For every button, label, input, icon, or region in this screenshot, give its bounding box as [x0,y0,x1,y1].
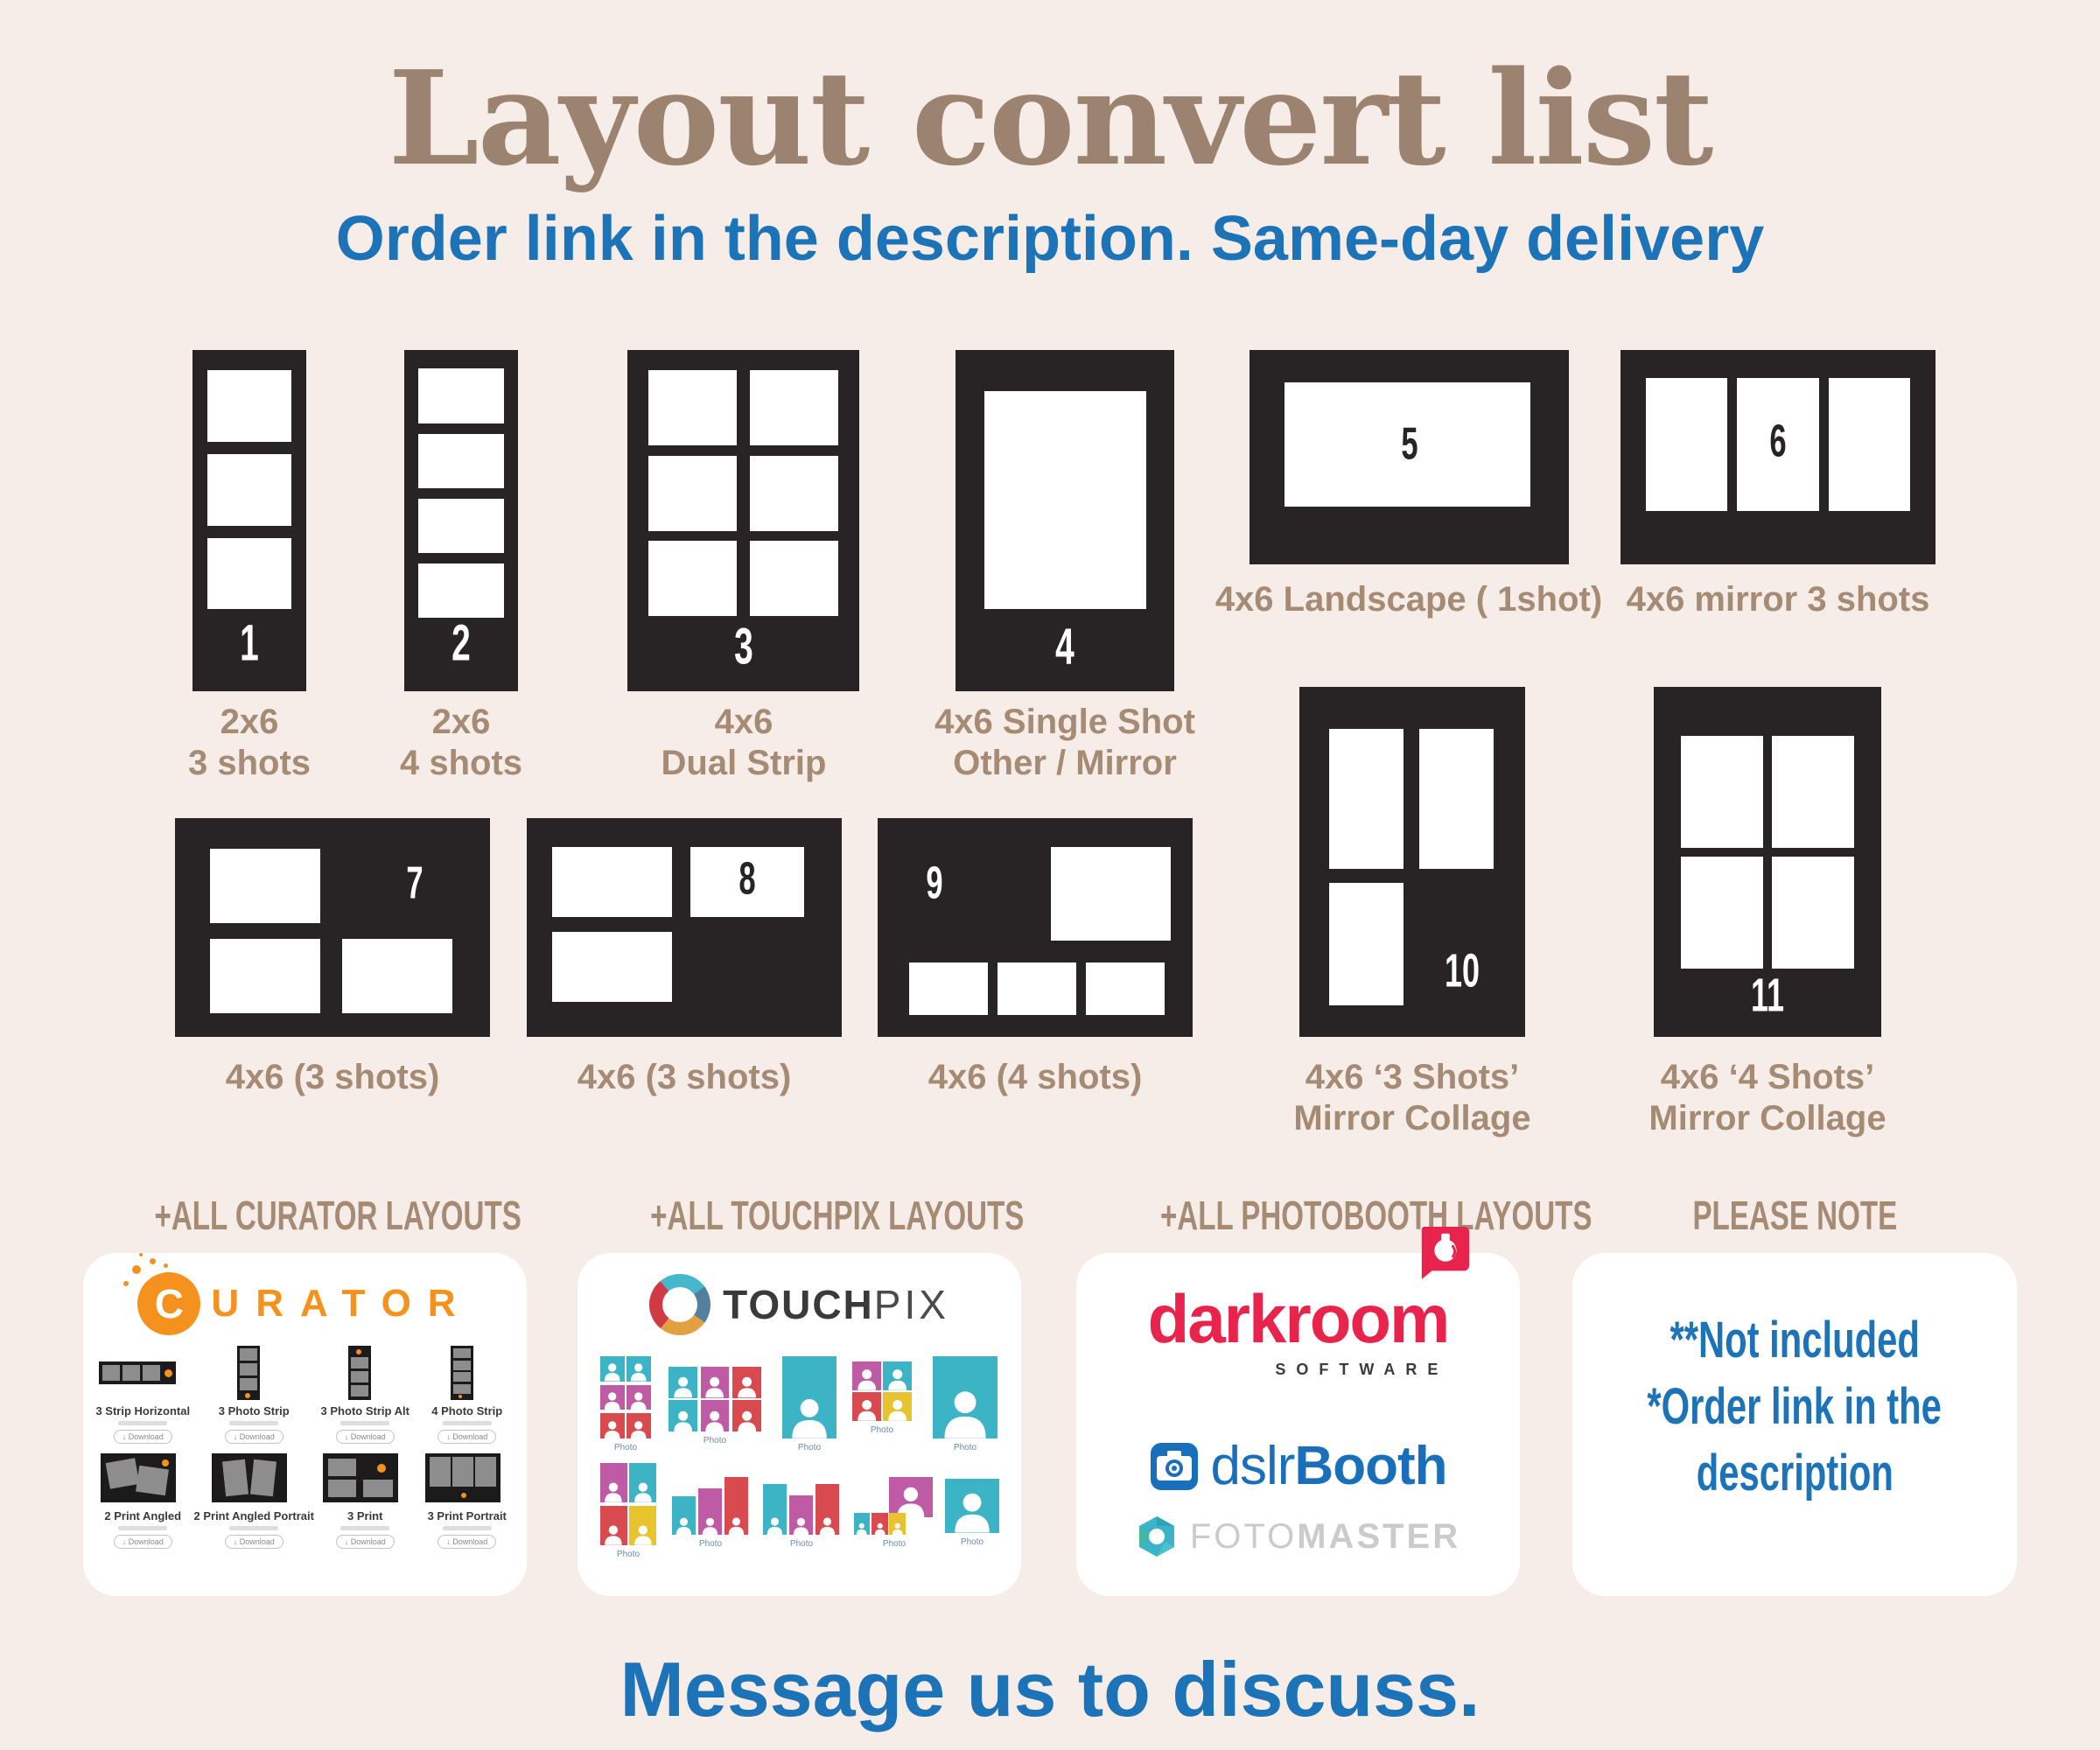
photo-slot [207,454,291,526]
download-button: ↓ Download [225,1535,283,1549]
photo-slot [1772,736,1854,848]
download-button: ↓ Download [114,1535,172,1549]
photo-slot [1329,729,1403,869]
download-button: ↓ Download [114,1430,172,1444]
curator-layout-caption: 3 Print [347,1509,382,1522]
photo-slot [1419,729,1494,869]
photo-slot [1772,857,1854,969]
touchpix-layout-thumb [945,1479,999,1533]
curator-card: C URATOR 3 Strip Horizontal↓ Download3 P… [83,1253,527,1596]
photo-slot [552,847,672,917]
photo-slot [342,939,452,1013]
photo-slot [418,499,505,553]
tile-label: 4x6 Single Shot Other / Mirror [864,702,1266,784]
curator-wordmark: URATOR [211,1282,472,1326]
tile-number: 10 [1445,943,1480,998]
touchpix-thumb-caption: Photo [663,1539,758,1549]
download-button: ↓ Download [336,1430,395,1444]
touchpix-header: +ALL TOUCHPIX LAYOUTS [577,1192,1021,1239]
photo-slot [648,370,737,445]
curator-layout-dims [229,1421,278,1425]
curator-layout-thumb [423,1346,511,1400]
dslrbooth-logo: dslrBooth [1076,1435,1520,1497]
layout-tile-7: 7 [175,818,490,1037]
curator-layout-thumb [210,1346,297,1400]
tile-number: 8 [738,853,755,905]
photo-slot [1329,883,1403,1005]
tile-number: 1 [240,614,259,673]
tile-number: 11 [1751,968,1784,1023]
darkroom-logo: darkroom SOFTWARE [1076,1279,1520,1379]
download-button: ↓ Download [336,1535,395,1549]
curator-layout-item: 4 Photo Strip↓ Download [416,1346,518,1444]
curator-layout-item: 2 Print Angled↓ Download [92,1451,194,1549]
tile-number: 2 [451,614,471,673]
curator-layout-caption: 2 Print Angled [104,1509,181,1522]
curator-layout-dims [229,1526,278,1530]
tile-label: 4x6 mirror 3 shots [1577,579,1979,620]
tile-label: 4x6 (3 shots) [483,1057,885,1098]
photo-slot [648,541,737,616]
curator-layout-item: 3 Print Portrait↓ Download [416,1451,518,1549]
fotomaster-aperture-icon [1136,1515,1178,1557]
note-text: **Not included *Order link in the descri… [1572,1307,2017,1507]
touchpix-thumb-caption: Photo [936,1537,1008,1547]
photo-slot [1086,962,1165,1015]
please-note-card: **Not included *Order link in the descri… [1572,1253,2017,1596]
curator-layout-thumb [210,1451,297,1505]
curator-layout-caption: 3 Photo Strip [219,1404,290,1417]
layout-tile-11: 11 [1654,687,1881,1037]
footer-message: Message us to discuss. [0,1645,2100,1734]
touchpix-thumb-caption: Photo [924,1443,1006,1452]
poster: Layout convert list Order link in the de… [0,0,2100,1750]
tile-label: 4x6 (4 shots) [834,1057,1236,1098]
photo-slot [207,538,291,610]
photo-slot [1681,736,1763,848]
curator-layout-thumb [321,1451,409,1505]
curator-layout-dims [340,1526,389,1530]
curator-c-icon: C [137,1272,200,1335]
curator-layout-item: 3 Photo Strip↓ Download [194,1346,314,1444]
tile-number: 4 [1055,618,1074,676]
curator-layout-caption: 4 Photo Strip [431,1404,502,1417]
tile-number: 3 [734,618,753,676]
touchpix-layout-thumb [852,1361,912,1421]
download-button: ↓ Download [437,1535,496,1549]
touchpix-layout-thumb [600,1463,656,1545]
curator-layout-caption: 3 Print Portrait [428,1509,507,1522]
touchpix-thumb-caption: Photo [591,1443,660,1452]
photo-slot [750,541,838,616]
touchpix-thumb-caption: Photo [843,1425,920,1435]
curator-logo: C URATOR [83,1272,527,1335]
darkroom-bubble-icon [1417,1225,1471,1279]
touchpix-card: TOUCHPIX PhotoPhotoPhotoPhotoPhotoPhotoP… [577,1253,1021,1596]
photo-slot [1051,847,1171,941]
subtitle: Order link in the description. Same-day … [0,203,2100,275]
tile-number: 5 [1401,418,1417,470]
touchpix-layout-thumb [600,1356,651,1438]
layout-tile-9: 9 [878,818,1193,1037]
curator-layout-item: 3 Photo Strip Alt↓ Download [314,1346,416,1444]
tile-label: 4x6 ‘4 Shots’ Mirror Collage [1566,1057,1969,1139]
touchpix-thumb-caption: Photo [845,1539,943,1549]
photo-slot [1646,378,1728,511]
touchpix-thumb-caption: Photo [591,1550,665,1559]
curator-layout-caption: 2 Print Angled Portrait [194,1509,314,1522]
touchpix-layout-thumb [763,1477,840,1535]
fotomaster-logo: FOTOMASTER [1076,1515,1520,1557]
layout-tile-6: 6 [1620,350,1935,564]
curator-layout-item: 3 Strip Horizontal↓ Download [92,1346,194,1444]
curator-layout-thumb [99,1451,186,1505]
photo-slot [750,370,838,445]
photo-slot [552,932,672,1002]
curator-layout-thumb [99,1346,186,1400]
curator-layout-dims [118,1526,167,1530]
photo-slot [210,849,320,923]
photo-slot [418,563,505,618]
curator-layout-dims [118,1421,167,1425]
photo-slot [418,368,505,423]
touchpix-layout-thumb [854,1477,934,1535]
touchpix-logo: TOUCHPIX [577,1274,1021,1335]
tile-number: 7 [406,857,423,909]
touchpix-thumb-caption: Photo [660,1436,770,1445]
touchpix-thumb-caption: Photo [754,1539,849,1549]
photo-slot [648,456,737,531]
page-title: Layout convert list [0,42,2100,194]
curator-layout-dims [443,1421,492,1425]
tile-label: 4x6 (3 shots) [131,1057,534,1098]
layout-tile-10: 10 [1299,687,1525,1037]
curator-layout-dims [443,1526,492,1530]
photo-slot [1829,378,1911,511]
tile-label: 4x6 Landscape ( 1shot) [1207,579,1610,620]
touchpix-ring-icon [649,1274,710,1335]
photo-slot [418,434,505,488]
dslrbooth-camera-icon [1150,1442,1199,1491]
tile-number: 9 [926,857,942,909]
curator-layout-thumb [321,1346,409,1400]
photo-slot [210,939,320,1013]
touchpix-layout-thumb [933,1356,997,1438]
curator-layout-caption: 3 Strip Horizontal [95,1404,190,1417]
photo-slot [750,456,838,531]
curator-layout-item: 2 Print Angled Portrait↓ Download [194,1451,314,1549]
curator-layout-thumb [423,1451,511,1505]
download-button: ↓ Download [437,1430,496,1444]
touchpix-thumb-caption: Photo [773,1443,845,1452]
tile-number: 6 [1769,416,1786,468]
photo-slot [1681,857,1763,969]
layout-tile-3: 3 [627,350,859,691]
layout-tile-2: 2 [404,350,518,691]
layout-tile-4: 4 [955,350,1174,691]
please-note-header: PLEASE NOTE [1572,1192,2017,1239]
layout-tile-5: 5 [1249,350,1569,564]
curator-layout-caption: 3 Photo Strip Alt [321,1404,409,1417]
photo-slot [207,370,291,442]
layout-tile-8: 8 [527,818,842,1037]
photo-slot [984,391,1146,610]
curator-layout-item: 3 Print↓ Download [314,1451,416,1549]
touchpix-layout-thumb [672,1477,749,1535]
photobooth-card: darkroom SOFTWARE dslrBooth [1076,1253,1520,1596]
tile-label: 4x6 ‘3 Shots’ Mirror Collage [1211,1057,1613,1139]
photo-slot [997,962,1076,1015]
touchpix-layout-thumb [668,1367,761,1431]
layout-tile-1: 1 [192,350,306,691]
download-button: ↓ Download [225,1430,283,1444]
curator-layout-grid: 3 Strip Horizontal↓ Download3 Photo Stri… [92,1346,518,1549]
touchpix-layout-thumb [782,1356,836,1438]
photo-slot [909,962,988,1015]
curator-layout-dims [340,1421,389,1425]
curator-header: +ALL CURATOR LAYOUTS [83,1192,527,1239]
